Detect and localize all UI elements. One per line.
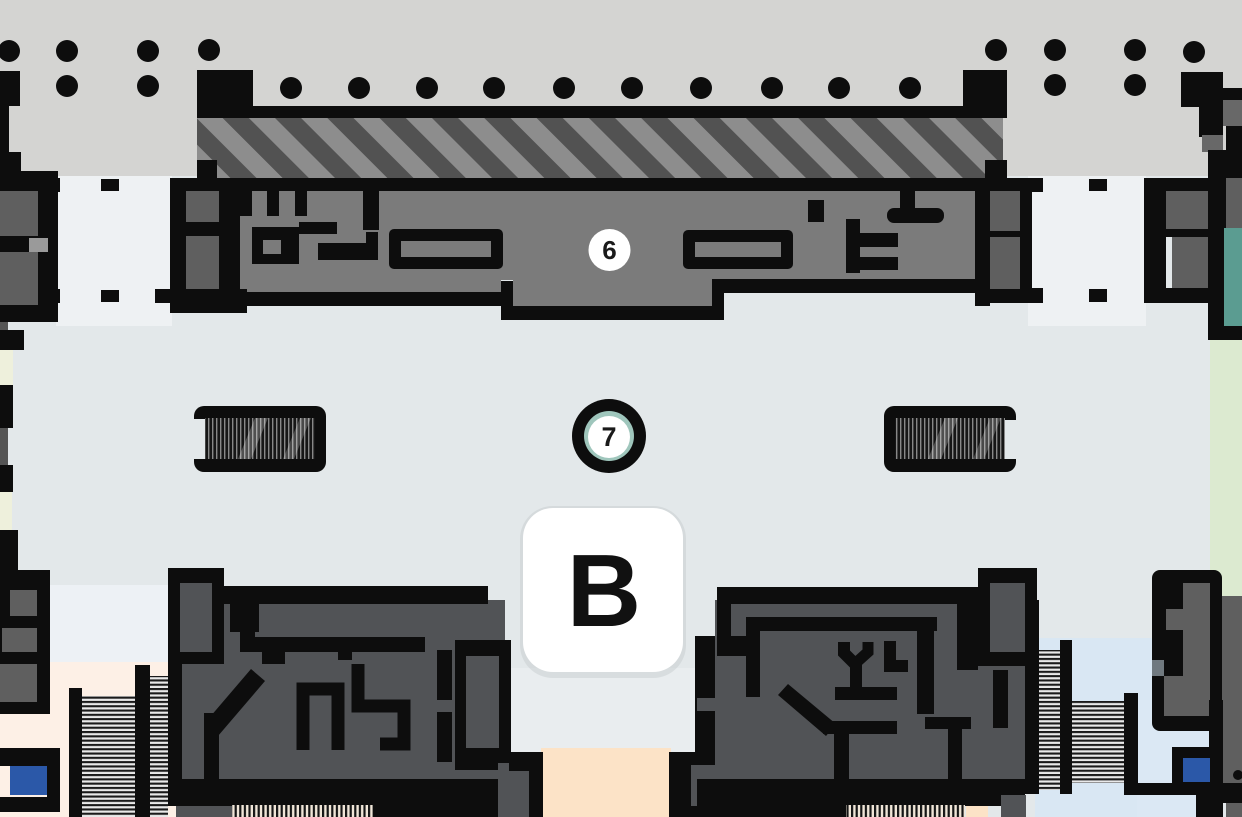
svg-text:6: 6: [602, 235, 616, 265]
svg-text:7: 7: [601, 422, 616, 452]
svg-text:B: B: [567, 533, 641, 648]
